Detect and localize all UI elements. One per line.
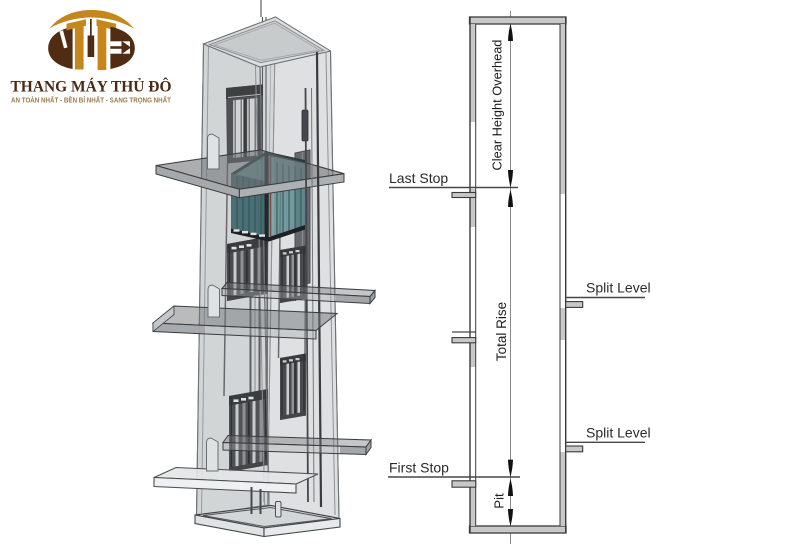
svg-text:Pit: Pit — [492, 493, 507, 509]
svg-text:Split Level: Split Level — [586, 280, 651, 296]
svg-text:THANG MÁY THỦ ĐÔ: THANG MÁY THỦ ĐÔ — [11, 79, 172, 96]
svg-text:Split Level: Split Level — [586, 424, 651, 440]
svg-text:First Stop: First Stop — [389, 460, 449, 476]
svg-text:AN TOÀN NHẤT - BỀN BỈ NHẤT - S: AN TOÀN NHẤT - BỀN BỈ NHẤT - SANG TRỌNG … — [11, 95, 171, 105]
svg-text:Last Stop: Last Stop — [389, 170, 448, 186]
svg-text:Clear Height Overhead: Clear Height Overhead — [490, 40, 505, 171]
svg-text:Total Rise: Total Rise — [494, 302, 509, 361]
